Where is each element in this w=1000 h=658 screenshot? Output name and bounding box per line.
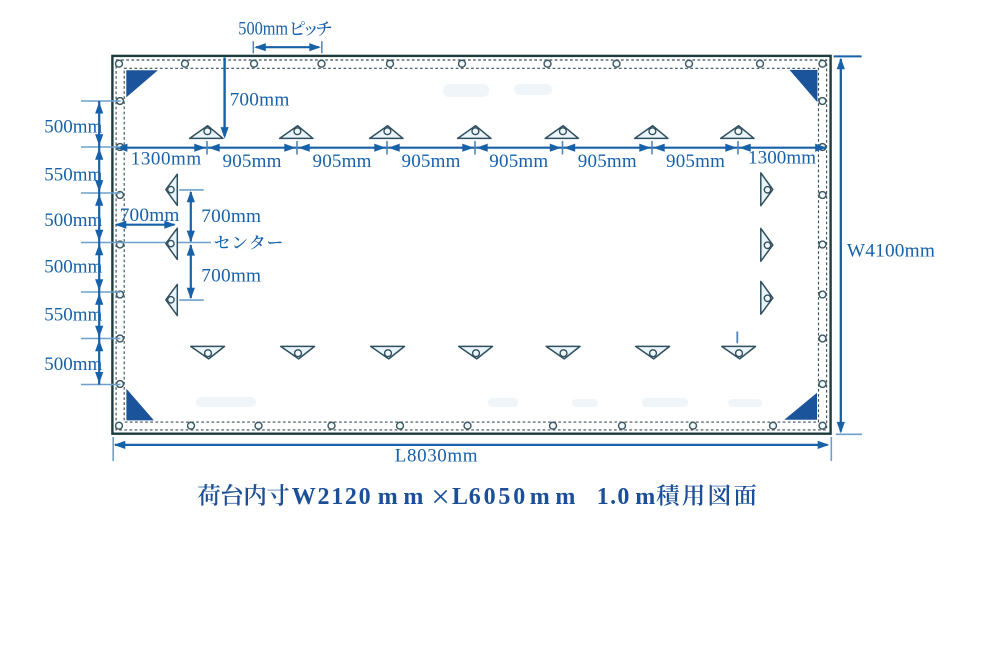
svg-text:500mm: 500mm <box>44 354 102 375</box>
svg-text:905mm: 905mm <box>666 151 725 172</box>
svg-text:L: L <box>452 484 468 510</box>
svg-text:700mm: 700mm <box>230 89 290 110</box>
svg-text:500mm: 500mm <box>238 17 288 39</box>
svg-text:905mm: 905mm <box>402 151 461 172</box>
svg-text:mm: mm <box>378 484 429 510</box>
svg-text:550mm: 550mm <box>44 164 102 185</box>
svg-text:905mm: 905mm <box>223 151 282 172</box>
svg-text:W2120: W2120 <box>292 484 373 510</box>
svg-text:500mm: 500mm <box>44 116 102 137</box>
svg-text:1300mm: 1300mm <box>748 148 816 169</box>
svg-text:500mm: 500mm <box>44 210 102 231</box>
svg-text:700mm: 700mm <box>201 265 261 286</box>
svg-text:L8030mm: L8030mm <box>395 445 478 466</box>
svg-text:1.0: 1.0 <box>597 484 631 510</box>
svg-text:1300mm: 1300mm <box>131 148 202 169</box>
svg-text:6050: 6050 <box>469 484 528 510</box>
svg-text:700mm: 700mm <box>201 206 261 227</box>
svg-text:700mm: 700mm <box>120 205 180 226</box>
svg-text:500mm: 500mm <box>44 257 102 278</box>
svg-text:mm: mm <box>530 484 581 510</box>
svg-text:m: m <box>635 484 655 510</box>
svg-text:905mm: 905mm <box>313 151 372 172</box>
svg-text:×: × <box>431 479 450 515</box>
svg-text:550mm: 550mm <box>44 305 102 326</box>
svg-text:905mm: 905mm <box>489 151 548 172</box>
svg-text:W4100mm: W4100mm <box>847 240 935 261</box>
svg-text:905mm: 905mm <box>578 151 637 172</box>
